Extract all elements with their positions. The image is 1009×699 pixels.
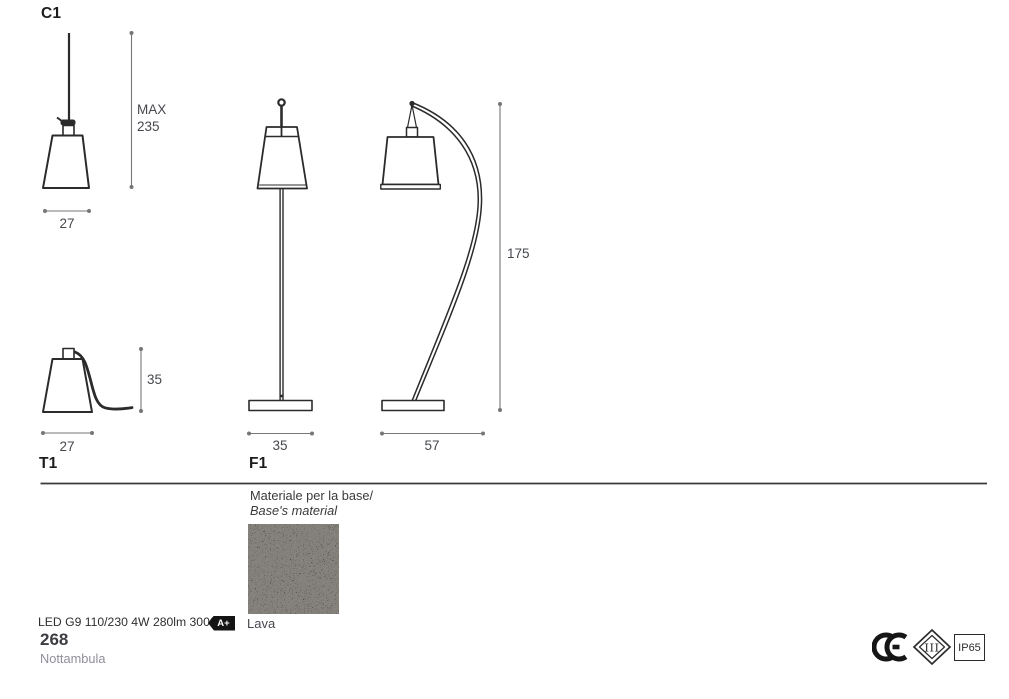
dimension-line-floor-side-width (380, 432, 485, 436)
dimension-line-table-width (41, 431, 94, 435)
dim-pendant-max-value: 235 (137, 119, 160, 134)
pendant-lamp-drawing (43, 33, 89, 188)
page-number: 268 (40, 630, 68, 650)
section-label-f1: F1 (249, 455, 268, 473)
table-lamp-drawing (43, 349, 132, 413)
dim-table-height: 35 (147, 372, 162, 387)
lava-material-swatch (248, 524, 339, 614)
dim-pendant-width: 27 (52, 216, 82, 231)
ce-mark-icon (872, 630, 914, 664)
material-title-it: Materiale per la base/ (250, 488, 373, 503)
dim-floor-side-width: 57 (417, 438, 447, 453)
datasheet-page: { "page": { "section_labels": { "c1": "C… (0, 0, 1009, 699)
dim-table-width: 27 (52, 439, 82, 454)
class-iii-label: III (924, 641, 939, 655)
section-label-c1: C1 (41, 5, 61, 23)
dim-floor-front-width: 35 (265, 438, 295, 453)
floor-lamp-front-drawing (249, 99, 312, 410)
section-label-t1: T1 (39, 455, 58, 473)
floor-lamp-side-drawing (381, 101, 482, 411)
swatch-name-label: Lava (247, 616, 275, 631)
dimension-line-pendant-height (130, 31, 134, 189)
dimension-line-table-height (139, 347, 143, 413)
led-spec-text: LED G9 110/230 4W 280lm 3000°K (38, 615, 230, 629)
product-name: Nottambula (40, 651, 105, 666)
class-iii-diamond-icon: III (912, 628, 952, 666)
dimension-line-floor-height (498, 102, 502, 412)
dimension-line-pendant-width (43, 209, 91, 213)
dim-floor-height: 175 (507, 246, 530, 261)
ip65-badge: IP65 (954, 634, 985, 661)
dimension-line-floor-front-width (247, 432, 314, 436)
material-title-en: Base's material (250, 503, 337, 518)
dim-pendant-max-label: MAX (137, 102, 166, 117)
